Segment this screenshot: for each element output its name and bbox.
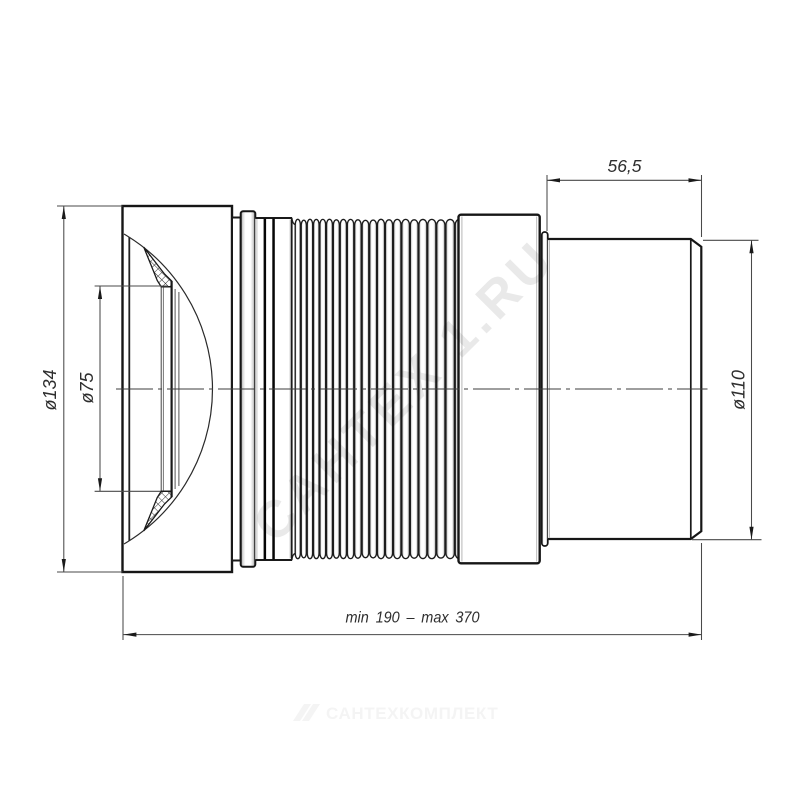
svg-text:56,5: 56,5 — [607, 156, 641, 176]
svg-text:min 190 – max 370: min 190 – max 370 — [346, 609, 480, 626]
svg-text:ø75: ø75 — [77, 372, 97, 404]
svg-text:ø110: ø110 — [729, 370, 749, 410]
svg-text:САНТЕХКОМПЛЕКТ: САНТЕХКОМПЛЕКТ — [326, 704, 498, 723]
svg-text:ø134: ø134 — [40, 369, 60, 410]
